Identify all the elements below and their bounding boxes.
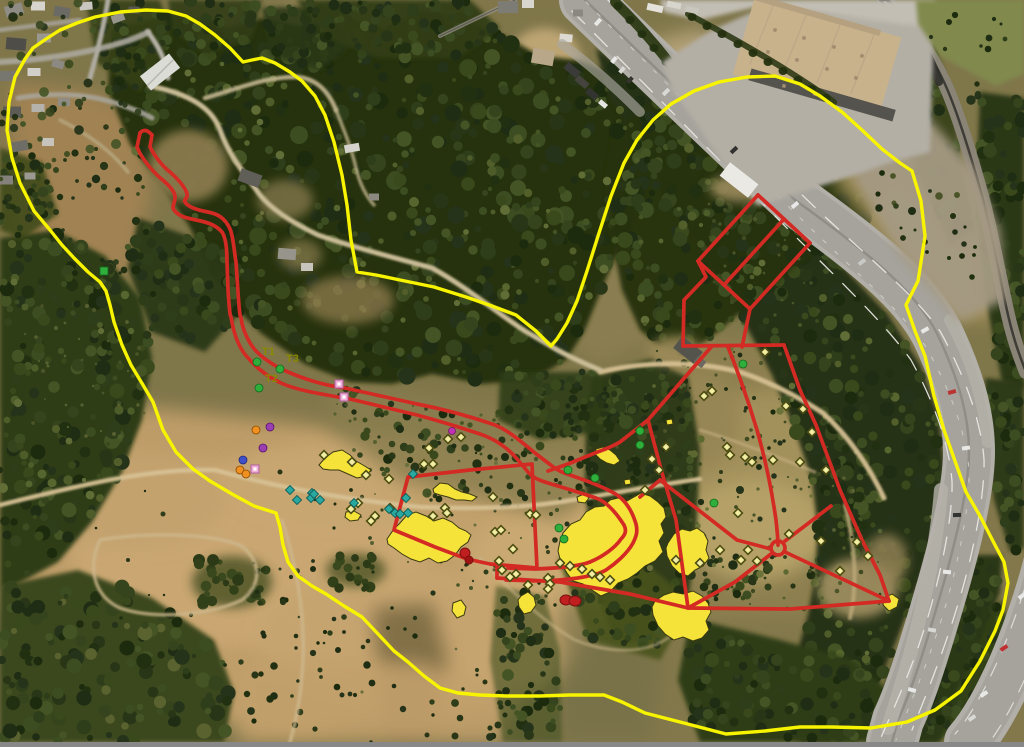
svg-text:T2: T2	[265, 373, 278, 385]
svg-text:T3: T3	[286, 353, 299, 365]
svg-text:T1: T1	[262, 346, 275, 358]
